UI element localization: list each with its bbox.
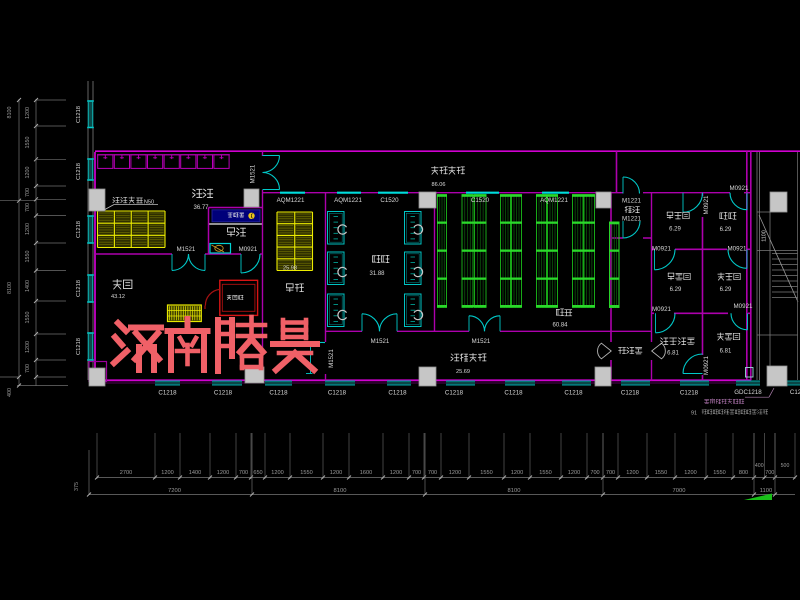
svg-text:8100: 8100	[508, 488, 521, 494]
svg-text:AQM1221: AQM1221	[334, 197, 362, 204]
svg-text:C1218: C1218	[76, 338, 82, 355]
svg-text:2700: 2700	[120, 470, 132, 476]
svg-text:C1218: C1218	[76, 280, 82, 297]
svg-text:800: 800	[739, 470, 748, 476]
svg-text:M1521: M1521	[177, 246, 196, 253]
svg-text:700: 700	[239, 470, 248, 476]
svg-text:1200: 1200	[449, 470, 461, 476]
svg-text:GDC1218: GDC1218	[734, 389, 762, 396]
svg-text:M0921: M0921	[703, 355, 710, 374]
svg-text:1200: 1200	[390, 470, 402, 476]
svg-text:C1218: C1218	[621, 390, 640, 397]
svg-text:6.81: 6.81	[720, 349, 732, 355]
svg-text:AQM1221: AQM1221	[277, 197, 305, 204]
svg-text:91: 91	[691, 410, 697, 416]
svg-text:1550: 1550	[655, 470, 667, 476]
svg-text:1200: 1200	[161, 470, 173, 476]
svg-text:M1221: M1221	[622, 215, 641, 222]
svg-text:6.81: 6.81	[667, 351, 679, 357]
svg-text:M0921: M0921	[652, 246, 671, 253]
svg-text:7200: 7200	[168, 488, 181, 494]
svg-text:700: 700	[25, 188, 31, 197]
svg-text:1200: 1200	[626, 470, 638, 476]
svg-text:43.12: 43.12	[111, 294, 125, 300]
svg-text:7000: 7000	[673, 488, 686, 494]
svg-text:M1521: M1521	[472, 338, 491, 345]
svg-text:AQM1221: AQM1221	[540, 197, 568, 204]
svg-text:M0921: M0921	[734, 303, 753, 310]
svg-text:1600: 1600	[360, 470, 372, 476]
svg-text:650: 650	[253, 470, 262, 476]
svg-text:C1218: C1218	[564, 390, 583, 397]
svg-text:8100: 8100	[334, 488, 347, 494]
svg-text:1200: 1200	[684, 470, 696, 476]
svg-text:C1218: C1218	[790, 389, 800, 396]
svg-text:700: 700	[25, 203, 31, 212]
svg-text:M1521: M1521	[250, 164, 257, 183]
svg-text:700: 700	[765, 470, 774, 476]
svg-text:C1218: C1218	[76, 221, 82, 238]
svg-text:1200: 1200	[511, 470, 523, 476]
svg-text:1550: 1550	[25, 312, 31, 324]
svg-text:6.29: 6.29	[720, 287, 732, 293]
svg-text:1200: 1200	[217, 470, 229, 476]
svg-text:500: 500	[781, 463, 790, 469]
svg-text:C1218: C1218	[76, 106, 82, 123]
svg-text:25.69: 25.69	[456, 369, 470, 375]
svg-text:M1221: M1221	[622, 198, 641, 205]
svg-text:375: 375	[74, 482, 80, 491]
svg-text:700: 700	[412, 470, 421, 476]
svg-text:M1521: M1521	[371, 338, 390, 345]
svg-text:8100: 8100	[7, 107, 13, 119]
svg-text:1100: 1100	[760, 488, 772, 494]
svg-text:6.29: 6.29	[669, 227, 681, 233]
svg-text:C1520: C1520	[471, 197, 490, 204]
svg-text:C1218: C1218	[214, 390, 233, 397]
svg-text:M0921: M0921	[728, 246, 747, 253]
svg-text:6.29: 6.29	[720, 227, 732, 233]
svg-text:31.88: 31.88	[369, 271, 385, 277]
svg-text:M0921: M0921	[703, 195, 710, 214]
svg-text:1400: 1400	[189, 470, 201, 476]
svg-text:C1218: C1218	[328, 390, 347, 397]
svg-text:1550: 1550	[480, 470, 492, 476]
svg-text:700: 700	[590, 470, 599, 476]
svg-text:N50: N50	[144, 199, 154, 205]
svg-text:C1218: C1218	[445, 390, 464, 397]
svg-text:700: 700	[25, 364, 31, 373]
svg-text:M1521: M1521	[328, 349, 335, 368]
svg-text:C1218: C1218	[269, 390, 288, 397]
svg-text:1550: 1550	[25, 251, 31, 263]
svg-text:C1218: C1218	[388, 390, 407, 397]
svg-text:1200: 1200	[25, 107, 31, 119]
svg-text:86.06: 86.06	[432, 182, 446, 188]
svg-text:1200: 1200	[271, 470, 283, 476]
svg-text:C1218: C1218	[680, 390, 699, 397]
svg-text:1200: 1200	[25, 167, 31, 179]
svg-text:1550: 1550	[539, 470, 551, 476]
svg-text:M0921: M0921	[239, 246, 258, 253]
svg-text:1100: 1100	[762, 230, 768, 242]
svg-text:700: 700	[606, 470, 615, 476]
svg-text:1200: 1200	[25, 341, 31, 353]
svg-text:M0921: M0921	[730, 185, 749, 192]
svg-text:8100: 8100	[7, 282, 13, 294]
svg-text:1550: 1550	[25, 137, 31, 149]
svg-text:M0921: M0921	[652, 306, 671, 313]
svg-text:6.29: 6.29	[670, 287, 682, 293]
svg-text:1400: 1400	[25, 280, 31, 292]
svg-text:1200: 1200	[25, 223, 31, 235]
svg-text:400: 400	[7, 388, 13, 397]
svg-text:1200: 1200	[568, 470, 580, 476]
svg-text:400: 400	[755, 463, 764, 469]
svg-text:1550: 1550	[713, 470, 725, 476]
svg-text:C1218: C1218	[76, 163, 82, 180]
svg-text:1200: 1200	[330, 470, 342, 476]
svg-text:C1218: C1218	[504, 390, 523, 397]
svg-text:700: 700	[428, 470, 437, 476]
svg-text:C1520: C1520	[380, 197, 399, 204]
svg-text:1550: 1550	[300, 470, 312, 476]
svg-text:36.77: 36.77	[193, 205, 209, 211]
svg-text:C1218: C1218	[158, 390, 177, 397]
svg-text:60.84: 60.84	[552, 323, 568, 329]
svg-text:25.98: 25.98	[283, 265, 297, 271]
